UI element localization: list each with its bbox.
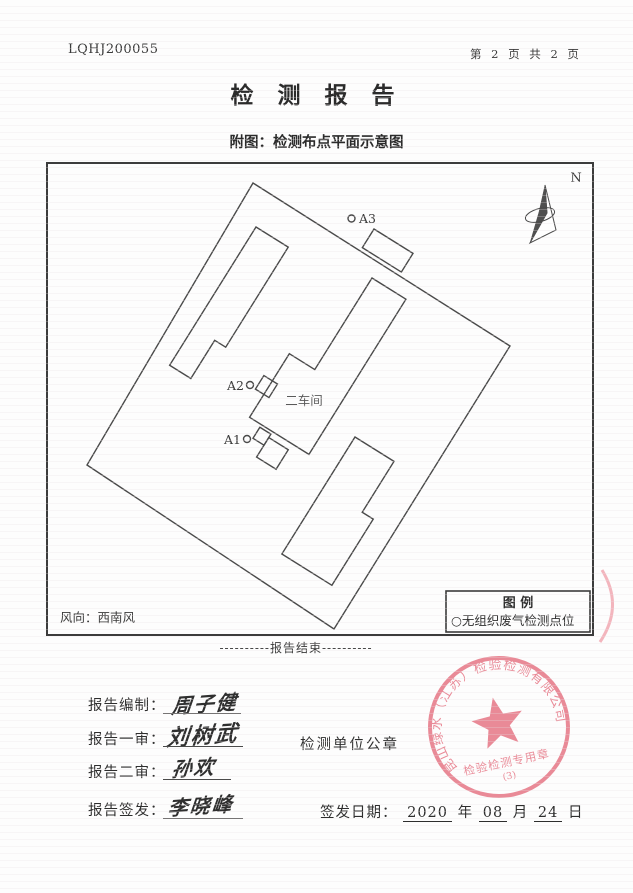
signature-line — [163, 779, 231, 780]
building-left — [170, 227, 289, 385]
building-workshop2 — [250, 262, 406, 454]
issue-date-day: 24 — [534, 805, 562, 822]
issue-date-month: 08 — [479, 805, 507, 822]
point-a1-label: A1 — [223, 432, 241, 447]
issue-date-month-unit: 月 — [513, 805, 529, 821]
signature-report-author: 周子健 — [171, 686, 240, 720]
building-gatehouse — [362, 229, 413, 272]
north-label: N — [570, 171, 581, 186]
seal-caption: 检测单位公章 — [300, 733, 399, 754]
legend-item: ○无组织废气检测点位 — [451, 613, 574, 628]
page-title: 检 测 报 告 — [0, 76, 633, 110]
label-report-issuer: 报告签发： — [88, 799, 166, 820]
annex-a1-small — [253, 427, 271, 445]
issue-date-day-unit: 日 — [568, 805, 584, 821]
point-a1-marker — [244, 436, 251, 443]
north-arrow-icon — [524, 185, 556, 243]
point-a3-label: A3 — [358, 211, 376, 226]
report-page: LQHJ200055 第 2 页 共 2 页 检 测 报 告 附图：检测布点平面… — [0, 0, 633, 893]
point-a2-marker — [247, 382, 254, 389]
label-first-review: 报告一审： — [88, 728, 166, 749]
point-a2-label: A2 — [226, 378, 244, 393]
signature-second-review: 孙欢 — [171, 750, 218, 782]
company-seal: 昆山绿水（江苏）检验检测有限公司 检验检测专用章 (3) — [410, 638, 588, 816]
signature-line — [163, 818, 243, 819]
point-a3-marker — [348, 215, 355, 222]
wind-direction-label: 风向：西南风 — [60, 610, 136, 625]
issue-date-label: 签发日期： — [320, 805, 398, 821]
label-report-author: 报告编制： — [88, 694, 166, 715]
signature-first-review: 刘树武 — [165, 715, 240, 752]
partial-stamp-arc — [598, 566, 628, 646]
page-subtitle: 附图：检测布点平面示意图 — [0, 131, 633, 152]
site-plan-drawing: 二车间 A3 A2 A1 N 图 例 ○无组织废气检测点位 风向：西南风 — [48, 164, 592, 634]
workshop-label: 二车间 — [285, 393, 323, 408]
annex-a1-large — [257, 438, 289, 470]
signature-line — [163, 746, 243, 747]
label-second-review: 报告二审： — [88, 761, 166, 782]
seal-star-icon — [468, 692, 528, 750]
legend-title: 图 例 — [503, 595, 534, 611]
signature-line — [163, 713, 241, 714]
page-indicator: 第 2 页 共 2 页 — [470, 46, 582, 62]
site-plan-frame: 二车间 A3 A2 A1 N 图 例 ○无组织废气检测点位 风向：西南风 — [46, 162, 594, 636]
signature-report-issuer: 李晓峰 — [167, 788, 236, 822]
report-end-marker: ----------报告结束---------- — [166, 639, 426, 656]
building-southeast — [282, 437, 405, 585]
report-number: LQHJ200055 — [68, 42, 158, 57]
seal-number: (3) — [502, 770, 517, 784]
